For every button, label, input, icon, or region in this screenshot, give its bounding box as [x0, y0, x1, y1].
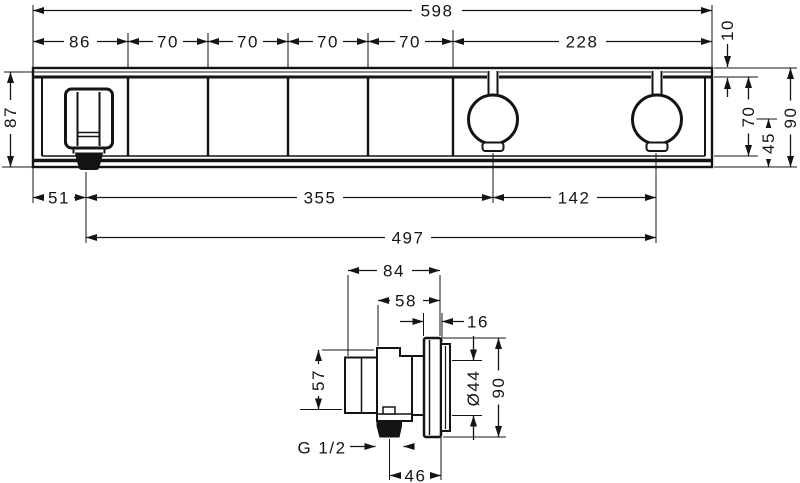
handle-left [469, 70, 518, 151]
dim-spout-offset-label: 51 [48, 189, 70, 208]
trim-plate-outline [33, 68, 712, 167]
dim-plate-height-label: 70 [739, 106, 758, 128]
dim-handle-spacing-label: 142 [558, 189, 591, 208]
spout [66, 89, 113, 170]
dim-flange-depth-label: 16 [467, 313, 489, 332]
dim-trim-thickness: 10 [718, 19, 737, 97]
dim-spout-to-last-handle: 497 [86, 229, 656, 248]
outlet-nipple [377, 422, 403, 438]
dim-plate-height: 70 [739, 77, 758, 156]
dim-depth-total: 84 [348, 262, 440, 281]
dim-height-left: 87 [1, 72, 20, 167]
handle-right-ring [633, 95, 682, 144]
dim-segment-6-label: 228 [566, 33, 599, 52]
escutcheon-plate [424, 338, 441, 437]
dim-depth-body-label: 58 [395, 292, 417, 311]
thread-label: G 1/2 [297, 439, 346, 458]
dim-segment-1-label: 86 [69, 33, 91, 52]
dim-outlet-offset: 46 [390, 467, 441, 483]
dim-flange-height: 90 [489, 338, 508, 437]
dim-segment-4-label: 70 [317, 33, 339, 52]
dim-overall-width-label: 598 [421, 2, 454, 21]
dim-segment-chain: 86 70 70 70 70 228 [33, 33, 712, 52]
spout-body [66, 89, 113, 148]
dim-segment-5-label: 70 [399, 33, 421, 52]
handle-left-tab [483, 143, 504, 152]
spout-nozzle [75, 153, 103, 171]
dim-flange-depth: 16 [400, 313, 489, 332]
dim-height-right: 90 [781, 68, 800, 167]
dim-depth-body: 58 [378, 292, 440, 311]
dim-bottom-chain: 51 355 142 [33, 189, 656, 208]
front-view-drawing: 598 86 70 70 70 70 228 87 [1, 2, 800, 248]
dim-segment-2-label: 70 [157, 33, 179, 52]
dim-body-height-label: 57 [309, 369, 328, 391]
valve-body [345, 348, 424, 421]
dim-height-left-label: 87 [1, 106, 20, 128]
dim-overall-width: 598 [33, 2, 712, 21]
escutcheon [424, 338, 450, 437]
dim-height-right-label: 90 [781, 107, 800, 129]
dim-outlet-offset-label: 46 [405, 467, 427, 483]
dim-depth-total-label: 84 [383, 262, 405, 281]
panel-dividers [128, 77, 453, 156]
handle-left-ring [469, 95, 518, 144]
dim-segment-3-label: 70 [237, 33, 259, 52]
dim-body-height: 57 [309, 350, 328, 410]
valve-stem [412, 356, 424, 415]
dim-spout-to-last-handle-label: 497 [392, 229, 425, 248]
dim-trim-thickness-label: 10 [718, 19, 737, 41]
handle-hook [383, 407, 395, 414]
handle-right [633, 70, 682, 151]
dimension-drawing: 598 86 70 70 70 70 228 87 [0, 0, 800, 483]
dim-handle-to-bottom: 45 [759, 119, 778, 167]
thread-callout: G 1/2 [297, 439, 414, 458]
dim-spout-to-handle-label: 355 [304, 189, 337, 208]
side-view-drawing: 84 58 16 57 Ø44 90 [297, 262, 508, 483]
handle-right-tab [647, 143, 668, 152]
dim-cutout-diameter-label: Ø44 [464, 370, 483, 407]
dim-handle-to-bottom-label: 45 [759, 132, 778, 154]
dim-flange-height-label: 90 [489, 377, 508, 399]
technical-drawing-canvas: 598 86 70 70 70 70 228 87 [0, 0, 800, 483]
dim-cutout-diameter: Ø44 [464, 336, 483, 440]
